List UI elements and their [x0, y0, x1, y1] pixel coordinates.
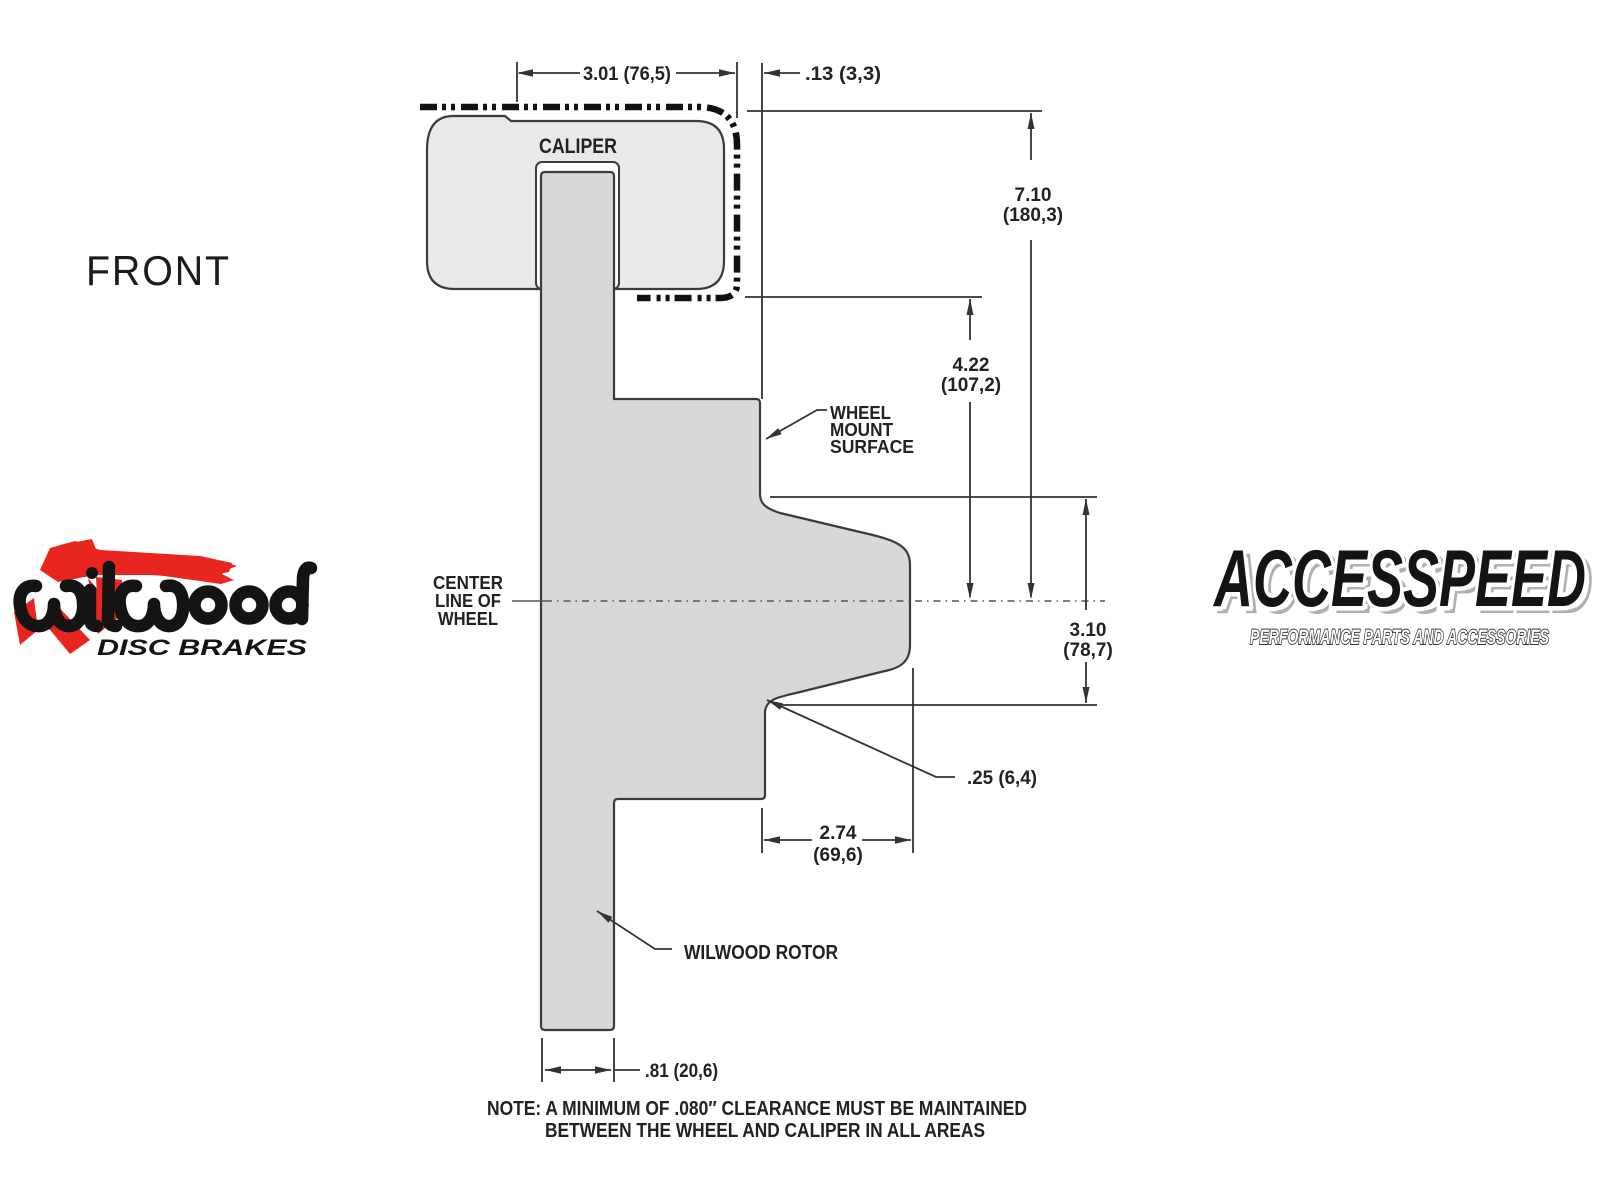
svg-text:DISC BRAKES: DISC BRAKES [97, 635, 307, 660]
svg-text:.25 (6,4): .25 (6,4) [967, 768, 1037, 789]
svg-text:CENTER: CENTER [433, 573, 503, 593]
svg-text:7.10: 7.10 [1015, 185, 1052, 206]
svg-text:.81 (20,6): .81 (20,6) [645, 1061, 718, 1082]
svg-text:FRONT: FRONT [86, 247, 231, 294]
svg-text:(78,7): (78,7) [1063, 640, 1113, 661]
svg-text:4.22: 4.22 [953, 355, 990, 376]
svg-text:CALIPER: CALIPER [539, 135, 617, 158]
svg-text:3.10: 3.10 [1070, 620, 1107, 641]
svg-text:(180,3): (180,3) [1003, 205, 1063, 226]
svg-text:WILWOOD ROTOR: WILWOOD ROTOR [684, 942, 838, 964]
svg-text:(69,6): (69,6) [813, 845, 863, 866]
svg-text:2.74: 2.74 [820, 823, 857, 844]
svg-text:SURFACE: SURFACE [830, 437, 914, 457]
svg-text:LINE OF: LINE OF [435, 591, 501, 611]
svg-text:BETWEEN THE WHEEL AND CALIPER: BETWEEN THE WHEEL AND CALIPER IN ALL ARE… [545, 1120, 985, 1142]
svg-text:.13 (3,3): .13 (3,3) [805, 64, 881, 85]
svg-text:(107,2): (107,2) [941, 375, 1001, 396]
svg-text:3.01 (76,5): 3.01 (76,5) [583, 64, 671, 85]
svg-text:NOTE: A MINIMUM OF .080″ CLEAR: NOTE: A MINIMUM OF .080″ CLEARANCE MUST … [487, 1098, 1027, 1120]
svg-text:ACCESSPEED: ACCESSPEED [1213, 534, 1586, 624]
svg-text:PERFORMANCE PARTS AND ACCESSOR: PERFORMANCE PARTS AND ACCESSORIES [1250, 625, 1549, 649]
svg-text:WHEEL: WHEEL [438, 609, 498, 629]
